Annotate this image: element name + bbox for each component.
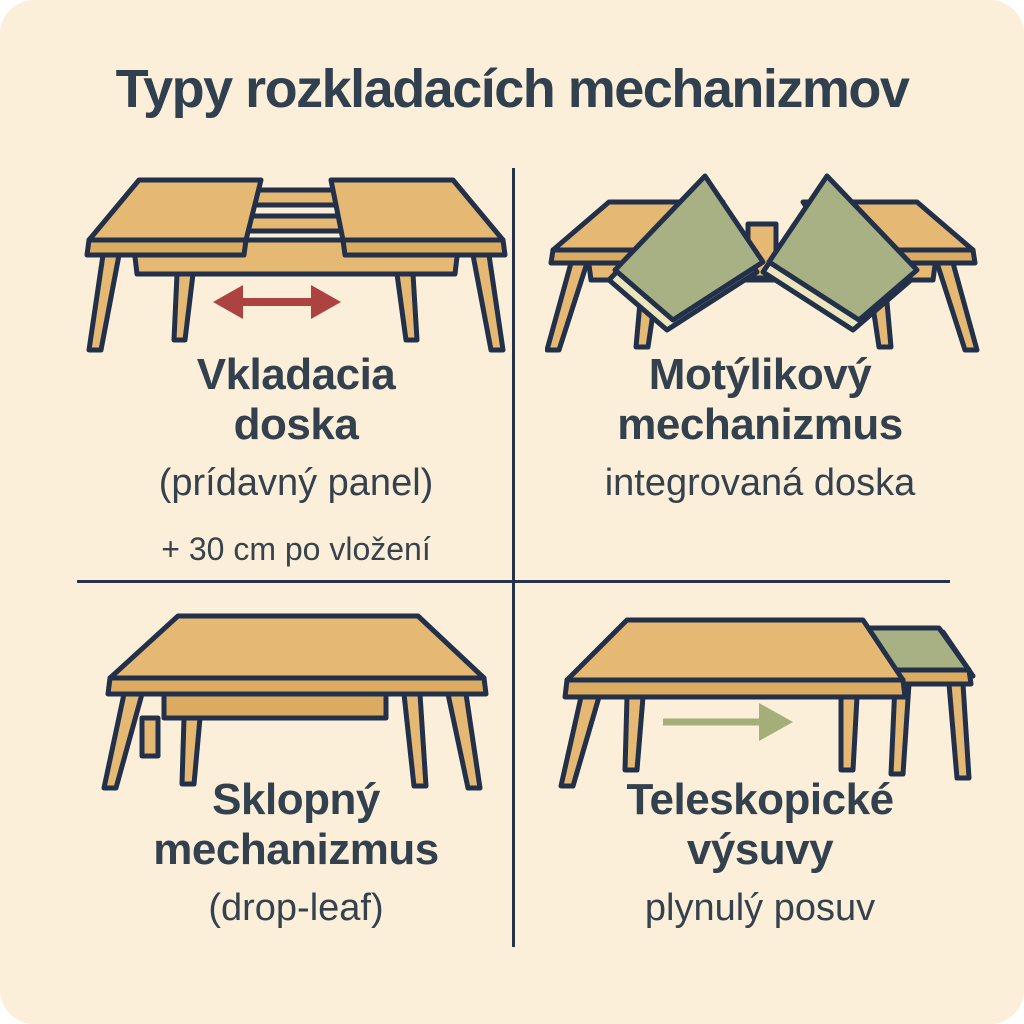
butterfly-right-panel-icon [763,176,917,330]
drop-leaf-illustration [76,602,506,792]
quadrant-drop-leaf-text: Sklopný mechanizmus (drop-leaf) [76,775,516,931]
green-right-arrow-icon [663,703,793,741]
page-title: Typy rozkladacích mechanizmov [0,58,1024,120]
drop-leaf-subheading: (drop-leaf) [76,885,516,931]
infographic-canvas: Typy rozkladacích mechanizmov [0,0,1024,1024]
butterfly-heading: Motýlikový mechanizmus [540,350,980,450]
quadrant-butterfly-text: Motýlikový mechanizmus integrovaná doska [540,350,980,506]
telescopic-table-icon [545,602,990,792]
quadrant-insert-leaf-text: Vkladacia doska (prídavný panel) + 30 cm… [76,350,516,568]
insert-leaf-table-icon [81,162,511,354]
butterfly-left-panel-icon [609,176,763,330]
butterfly-illustration [545,162,985,354]
insert-leaf-note: + 30 cm po vložení [76,530,516,568]
telescopic-subheading: plynulý posuv [540,885,980,931]
telescopic-illustration [545,602,990,792]
drop-leaf-heading: Sklopný mechanizmus [76,775,516,875]
red-double-arrow-icon [213,285,341,319]
quadrant-telescopic-text: Teleskopické výsuvy plynulý posuv [540,775,980,931]
telescopic-heading: Teleskopické výsuvy [540,775,980,875]
insert-leaf-heading: Vkladacia doska [76,350,516,450]
butterfly-table-icon [545,162,985,354]
drop-leaf-table-icon [76,602,506,792]
insert-leaf-subheading: (prídavný panel) [76,460,516,506]
butterfly-subheading: integrovaná doska [540,460,980,506]
horizontal-divider [77,580,950,583]
insert-leaf-illustration [81,162,511,354]
